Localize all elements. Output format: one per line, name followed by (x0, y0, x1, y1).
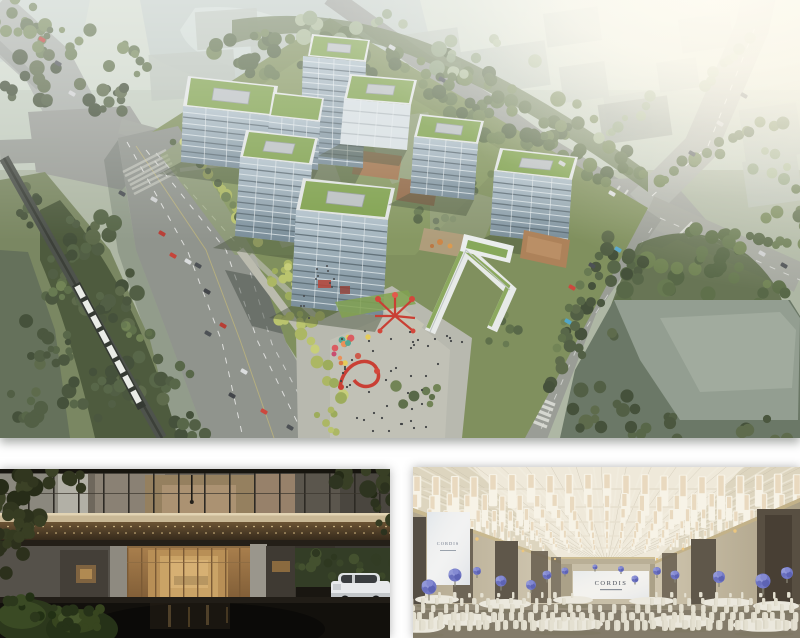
svg-text:CORDIS: CORDIS (437, 541, 460, 546)
svg-text:CORDIS: CORDIS (595, 580, 628, 587)
